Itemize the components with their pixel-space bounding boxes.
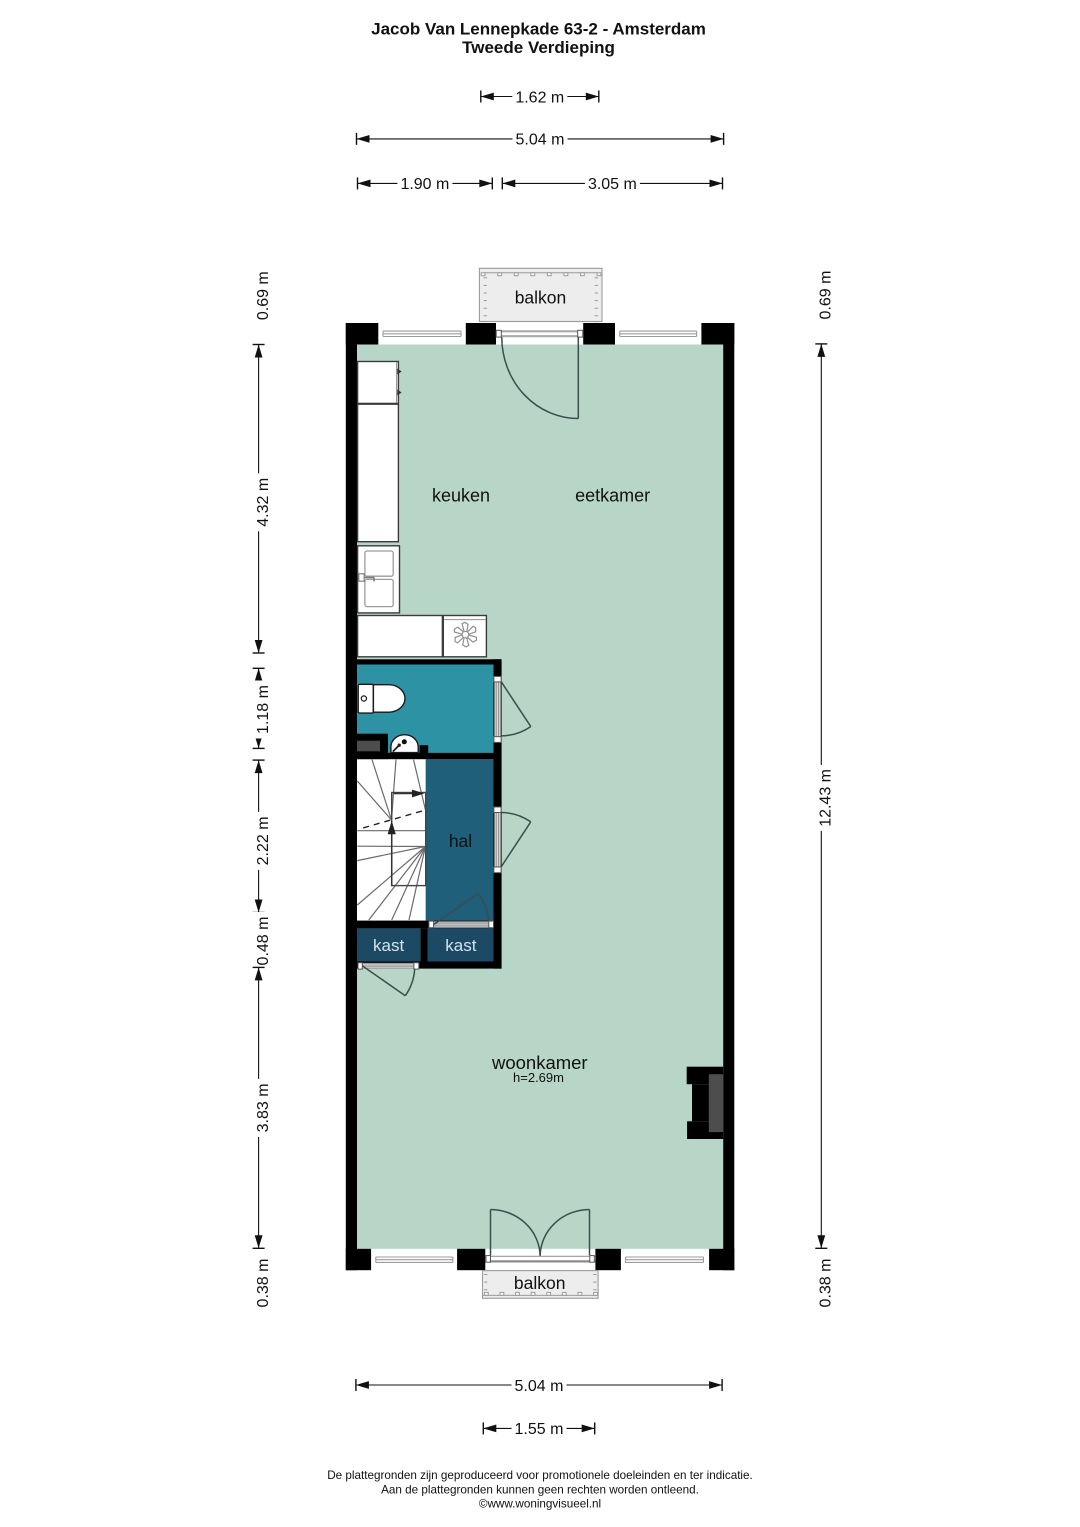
svg-text:1.62 m: 1.62 m [515,89,564,106]
svg-text:3.83 m: 3.83 m [255,1083,272,1132]
svg-text:Jacob Van Lennepkade 63-2 - Am: Jacob Van Lennepkade 63-2 - Amsterdam [371,20,706,39]
svg-text:balkon: balkon [515,288,567,308]
svg-text:keuken: keuken [432,486,490,506]
svg-text:kast: kast [373,936,404,955]
svg-text:0.69 m: 0.69 m [255,271,272,320]
svg-text:0.38 m: 0.38 m [818,1259,835,1308]
svg-text:Aan de plattegronden kunnen ge: Aan de plattegronden kunnen geen rechten… [381,1484,699,1497]
svg-text:2.22 m: 2.22 m [255,816,272,865]
svg-text:hal: hal [449,831,472,851]
svg-text:12.43 m: 12.43 m [818,769,835,827]
svg-text:h=2.69m: h=2.69m [513,1070,564,1085]
svg-text:0.48 m: 0.48 m [255,917,272,966]
svg-text:kast: kast [445,936,476,955]
svg-text:5.04 m: 5.04 m [516,132,565,149]
svg-text:balkon: balkon [514,1273,566,1293]
svg-text:5.04 m: 5.04 m [515,1378,564,1395]
svg-text:De plattegronden zijn geproduc: De plattegronden zijn geproduceerd voor … [327,1469,753,1482]
svg-text:4.32 m: 4.32 m [255,478,272,527]
svg-text:1.18 m: 1.18 m [255,685,272,734]
svg-text:1.90 m: 1.90 m [400,176,449,193]
svg-text:©www.woningvisueel.nl: ©www.woningvisueel.nl [479,1498,601,1511]
svg-text:eetkamer: eetkamer [575,486,650,506]
svg-text:0.69 m: 0.69 m [818,271,835,320]
svg-text:0.38 m: 0.38 m [255,1259,272,1308]
svg-text:3.05 m: 3.05 m [588,176,637,193]
svg-text:Tweede Verdieping: Tweede Verdieping [462,38,615,57]
svg-text:1.55 m: 1.55 m [515,1421,564,1438]
